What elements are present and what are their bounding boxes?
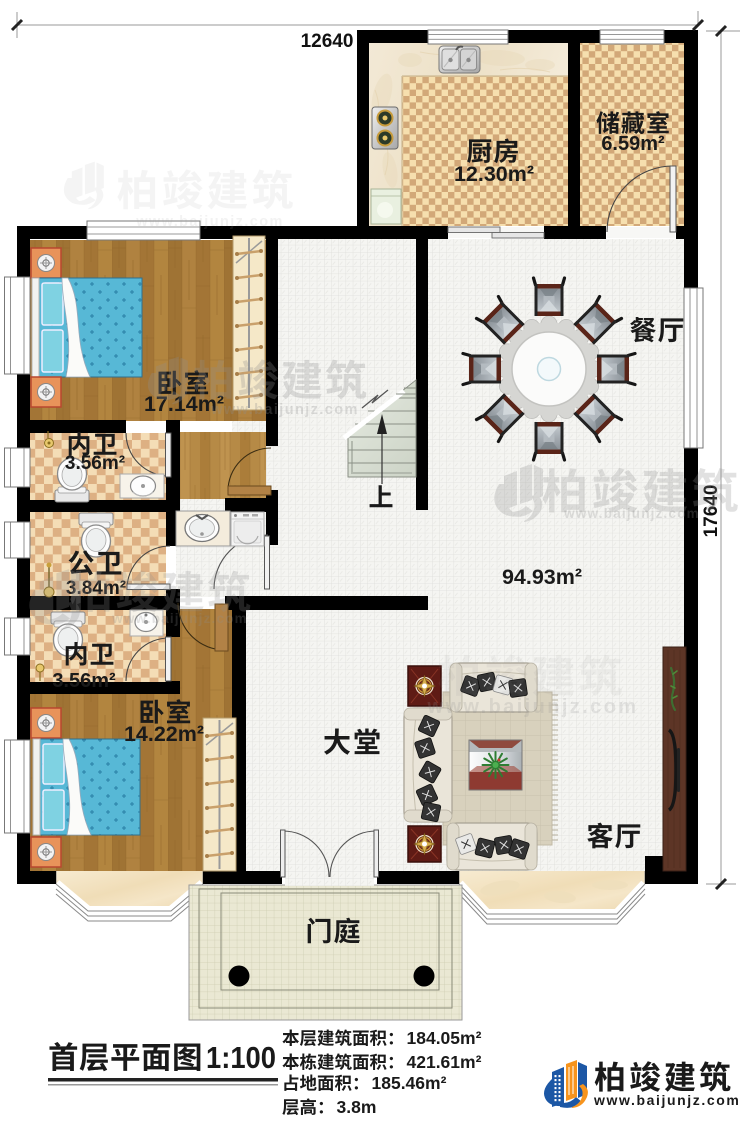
svg-text:421.61m²: 421.61m²: [407, 1052, 482, 1072]
svg-text:www.baijunjz.com: www.baijunjz.com: [135, 214, 284, 230]
svg-text:www.baijunjz.com: www.baijunjz.com: [563, 506, 700, 521]
svg-text:12.30m²: 12.30m²: [454, 162, 534, 186]
svg-text:12640: 12640: [301, 31, 354, 52]
svg-text:6.59m²: 6.59m²: [601, 133, 665, 155]
svg-text:3.8m: 3.8m: [337, 1097, 377, 1117]
svg-text:www.baijunjz.com: www.baijunjz.com: [426, 696, 638, 718]
svg-text:www.baijunjz.com: www.baijunjz.com: [111, 611, 248, 626]
svg-text:14.22m²: 14.22m²: [124, 722, 204, 746]
svg-text:1:100: 1:100: [206, 1040, 276, 1075]
svg-text:94.93m²: 94.93m²: [502, 565, 582, 589]
svg-text:184.05m²: 184.05m²: [407, 1028, 482, 1048]
svg-text:3.56m²: 3.56m²: [52, 670, 116, 692]
svg-text:www.baijunjz.com: www.baijunjz.com: [593, 1092, 740, 1108]
svg-text:185.46m²: 185.46m²: [372, 1073, 447, 1093]
svg-text:3.56m²: 3.56m²: [65, 453, 125, 474]
svg-text:www.baijunjz.com: www.baijunjz.com: [210, 402, 359, 418]
